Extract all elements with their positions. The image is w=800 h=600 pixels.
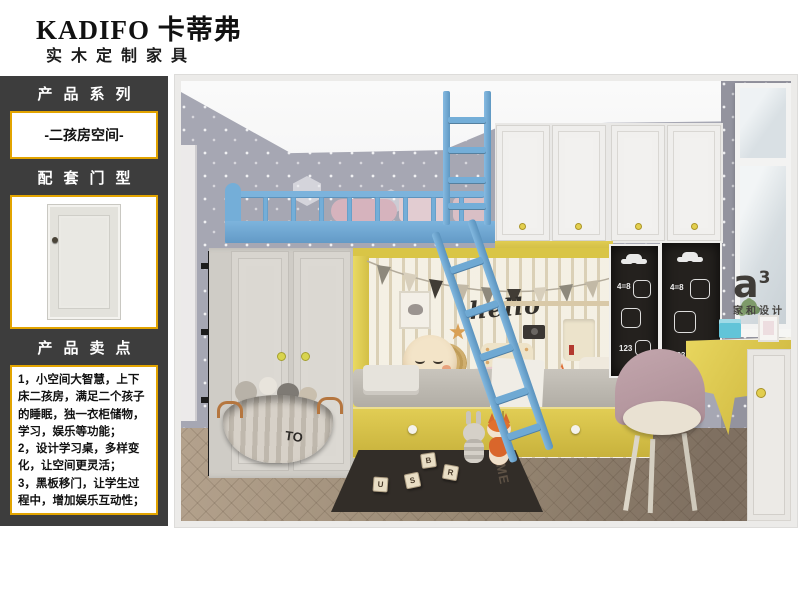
chalk-square-doodle bbox=[621, 308, 641, 328]
chair-leg bbox=[648, 439, 656, 513]
railing-slat bbox=[263, 197, 268, 223]
letter-block: S bbox=[404, 472, 422, 490]
railing-slat bbox=[431, 197, 436, 223]
door-section-title: 配套门型 bbox=[0, 168, 168, 190]
railing-slat bbox=[291, 197, 296, 223]
series-value-box: -二孩房空间- bbox=[10, 111, 158, 159]
letter-block: R bbox=[442, 464, 459, 481]
railing-slat bbox=[319, 197, 324, 223]
railing-slat bbox=[403, 197, 408, 223]
series-value: -二孩房空间- bbox=[44, 125, 123, 145]
room-photo-frame: hello bbox=[175, 75, 797, 527]
drawer-knob bbox=[571, 425, 580, 434]
desk-photo-frame bbox=[758, 315, 779, 342]
desk-chair bbox=[615, 349, 707, 519]
left-door-trim bbox=[181, 145, 197, 421]
railing-slat bbox=[375, 197, 380, 223]
ladder-rung bbox=[464, 300, 498, 318]
chalk-text: 4=8 bbox=[617, 282, 631, 291]
face-pillow-eye bbox=[433, 357, 443, 364]
chair-leg bbox=[623, 435, 640, 511]
ladder-rung bbox=[448, 147, 486, 153]
bag-tag bbox=[569, 345, 574, 355]
basket-handle bbox=[317, 397, 343, 414]
watermark-name: 家和设计 bbox=[733, 302, 791, 317]
wardrobe-knob bbox=[301, 352, 310, 361]
chalk-square-doodle bbox=[690, 279, 710, 299]
designer-watermark: a3 家和设计 bbox=[733, 263, 791, 317]
ruler-mark bbox=[201, 329, 209, 335]
loft-bolster-pillow bbox=[331, 199, 397, 223]
elephant-art bbox=[408, 304, 423, 315]
letter-block: U bbox=[372, 476, 388, 492]
ladder-rung bbox=[448, 177, 486, 183]
points-section-title: 产品卖点 bbox=[0, 338, 168, 360]
tote-bag-decor bbox=[563, 319, 595, 361]
drawer-knob bbox=[408, 425, 417, 434]
selling-points-box: 1，小空间大智慧，上下床二孩房，满足二个孩子的睡眠，独一衣柜储物，学习，娱乐等功… bbox=[10, 365, 158, 515]
ladder-rung bbox=[449, 256, 483, 274]
folded-blanket bbox=[363, 365, 419, 391]
letter-block: B bbox=[420, 452, 437, 469]
desk-storage-box bbox=[719, 319, 741, 338]
selling-point-2: 2，设计学习桌，多样变化，让空间更灵活； bbox=[18, 441, 150, 476]
brand-tagline: 实木定制家具 bbox=[46, 42, 196, 66]
chalk-square-doodle bbox=[633, 280, 651, 298]
door-panel-image bbox=[47, 204, 121, 320]
face-pillow-eye bbox=[415, 357, 425, 364]
ladder-rung bbox=[479, 343, 513, 361]
ladder-rung bbox=[507, 423, 541, 441]
railing-slat bbox=[347, 197, 352, 223]
chair-leg bbox=[682, 433, 698, 511]
cabinet-knob bbox=[635, 223, 642, 230]
door-type-box bbox=[10, 195, 158, 329]
plush-in-basket bbox=[259, 377, 277, 395]
rabbit-plush bbox=[462, 417, 488, 463]
series-section-title: 产品系列 bbox=[0, 84, 168, 106]
chalk-cloud-doodle bbox=[626, 254, 642, 263]
ladder-rung bbox=[448, 117, 486, 123]
basket-handle bbox=[217, 401, 243, 418]
elephant-picture-frame bbox=[399, 291, 431, 329]
upper-cabinets bbox=[495, 123, 723, 243]
selling-point-1: 1，小空间大智慧，上下床二孩房，满足二个孩子的睡眠，独一衣柜储物，学习，娱乐等功… bbox=[18, 372, 150, 441]
photo bbox=[763, 321, 774, 335]
window-glass-top bbox=[740, 88, 786, 158]
cabinet-knob bbox=[756, 388, 766, 398]
cabinet-knob bbox=[691, 223, 698, 230]
chair-seat bbox=[623, 401, 701, 435]
basket-label: TO bbox=[284, 428, 304, 445]
chalk-cloud-doodle bbox=[682, 252, 698, 261]
ladder-rung bbox=[448, 203, 486, 209]
rabbit-body bbox=[464, 439, 484, 463]
chalk-square-doodle bbox=[674, 311, 696, 333]
watermark-logo: a3 bbox=[733, 262, 771, 306]
toy-basket: TO bbox=[219, 379, 337, 467]
poster-page: KADIFO 卡蒂弗 实木定制家具 产品系列 -二孩房空间- 配套门型 产品卖点… bbox=[0, 0, 800, 600]
window-low-cabinet bbox=[747, 349, 791, 521]
camera-decor bbox=[523, 325, 545, 339]
chalk-text: 4=8 bbox=[670, 283, 684, 292]
sidebar: 产品系列 -二孩房空间- 配套门型 产品卖点 1，小空间大智慧，上下床二孩房，满… bbox=[0, 76, 168, 526]
cabinet-knob bbox=[519, 223, 526, 230]
room-scene: hello bbox=[181, 81, 791, 521]
wall-hook-rail bbox=[503, 301, 621, 306]
ladder-rung bbox=[494, 387, 528, 405]
wardrobe-knob bbox=[277, 352, 286, 361]
ruler-mark bbox=[201, 397, 209, 403]
vertical-ladder bbox=[443, 91, 491, 225]
door-knob-icon bbox=[52, 237, 58, 243]
cabinet-knob bbox=[575, 223, 582, 230]
selling-point-3: 3，黑板移门，让学生过程中，增加娱乐互动性； bbox=[18, 476, 150, 511]
camera-lens bbox=[531, 328, 538, 335]
ruler-mark bbox=[201, 263, 209, 269]
